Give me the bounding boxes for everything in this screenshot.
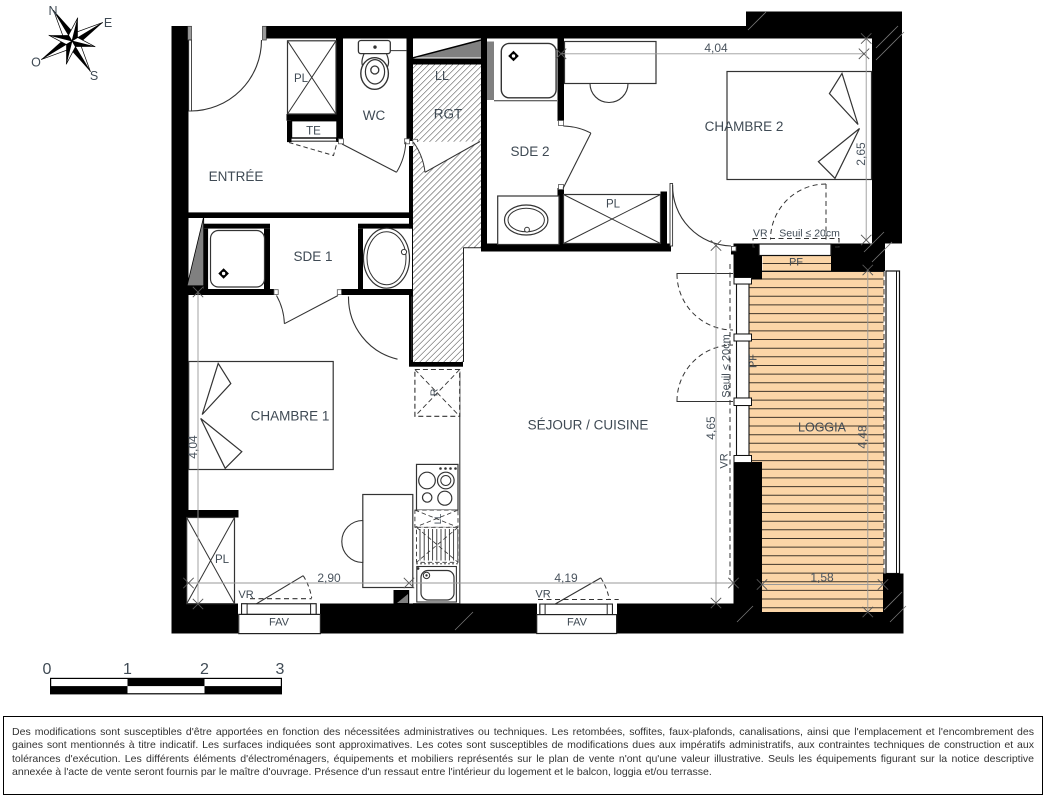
svg-text:LL: LL — [433, 514, 444, 525]
svg-text:PF: PF — [789, 257, 803, 269]
svg-text:RGT: RGT — [434, 107, 463, 122]
svg-text:VR: VR — [718, 453, 730, 468]
svg-text:VR Seuil ≤ 20cm: VR Seuil ≤ 20cm — [753, 228, 840, 240]
svg-text:CHAMBRE 2: CHAMBRE 2 — [705, 119, 784, 134]
svg-text:VR: VR — [535, 589, 550, 601]
svg-text:CHAMBRE 1: CHAMBRE 1 — [251, 409, 330, 424]
svg-text:2: 2 — [200, 661, 209, 678]
svg-text:FAV: FAV — [269, 617, 290, 629]
svg-text:E: E — [104, 16, 112, 30]
svg-text:4,04: 4,04 — [704, 41, 728, 55]
svg-text:SDE 1: SDE 1 — [293, 249, 332, 264]
svg-text:O: O — [31, 56, 41, 70]
svg-text:N: N — [48, 4, 57, 18]
svg-text:1,58: 1,58 — [810, 571, 834, 585]
svg-text:VR: VR — [238, 589, 253, 601]
svg-text:Seuil ≤ 20cm: Seuil ≤ 20cm — [721, 334, 733, 398]
svg-text:PF: PF — [748, 354, 760, 368]
svg-text:ENTRÉE: ENTRÉE — [209, 169, 264, 184]
svg-text:2,65: 2,65 — [854, 142, 868, 166]
svg-text:0: 0 — [43, 661, 52, 678]
svg-text:SÉJOUR / CUISINE: SÉJOUR / CUISINE — [528, 418, 649, 433]
svg-text:LOGGIA: LOGGIA — [798, 421, 847, 435]
svg-text:PL: PL — [215, 554, 230, 566]
svg-text:1: 1 — [123, 661, 132, 678]
svg-text:2,90: 2,90 — [317, 571, 341, 585]
svg-text:4,48: 4,48 — [855, 425, 869, 449]
svg-text:PL: PL — [294, 73, 309, 85]
svg-text:PL: PL — [606, 199, 621, 211]
svg-text:4,19: 4,19 — [554, 571, 578, 585]
svg-text:3: 3 — [276, 661, 285, 678]
svg-text:LL: LL — [435, 69, 449, 83]
svg-text:WC: WC — [363, 108, 386, 123]
svg-text:4,65: 4,65 — [704, 416, 718, 440]
svg-text:TE: TE — [306, 126, 321, 138]
svg-text:R: R — [429, 388, 441, 396]
svg-text:4,04: 4,04 — [186, 435, 200, 459]
svg-text:S: S — [90, 69, 98, 83]
svg-text:FAV: FAV — [567, 617, 588, 629]
svg-text:SDE 2: SDE 2 — [510, 144, 549, 159]
